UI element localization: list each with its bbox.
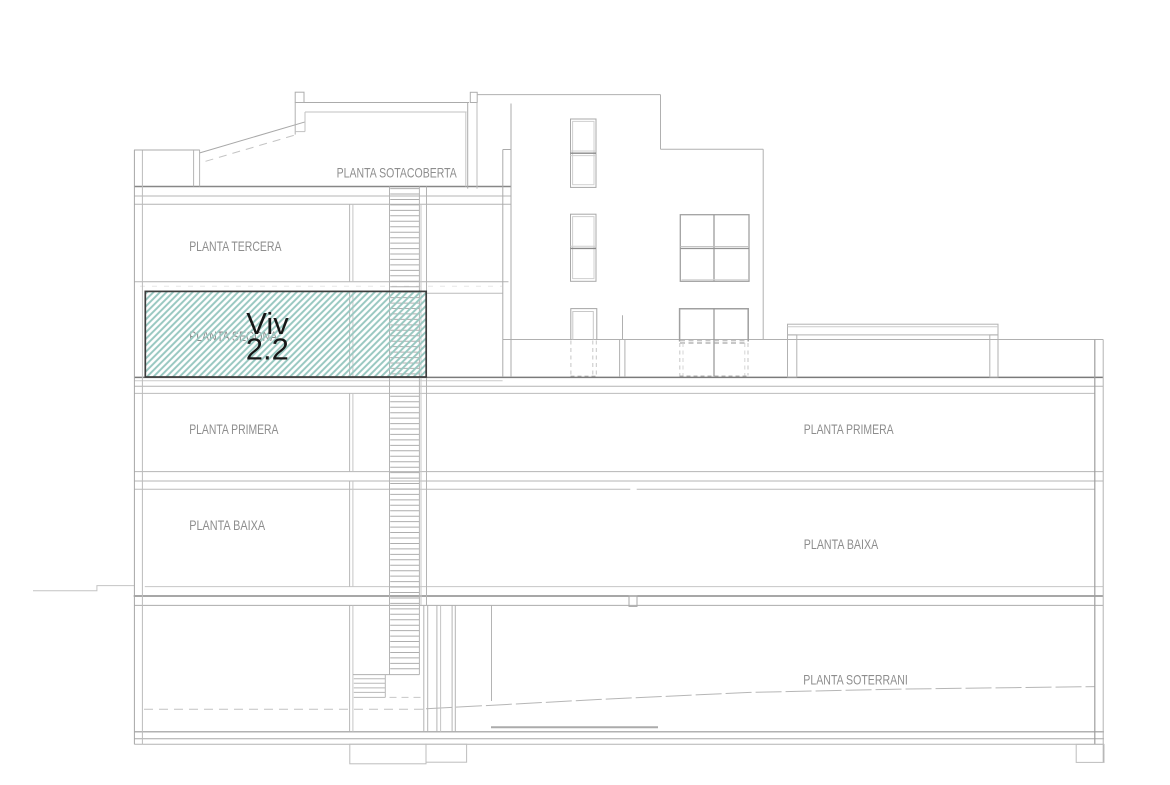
svg-text:PLANTA BAIXA: PLANTA BAIXA bbox=[804, 536, 879, 552]
svg-text:PLANTA PRIMERA: PLANTA PRIMERA bbox=[804, 421, 894, 437]
svg-text:PLANTA PRIMERA: PLANTA PRIMERA bbox=[189, 421, 279, 437]
svg-text:2.2: 2.2 bbox=[246, 332, 289, 367]
svg-text:PLANTA SOTERRANI: PLANTA SOTERRANI bbox=[803, 671, 908, 687]
svg-text:PLANTA TERCERA: PLANTA TERCERA bbox=[189, 238, 282, 254]
svg-text:PLANTA BAIXA: PLANTA BAIXA bbox=[189, 517, 265, 533]
svg-text:PLANTA SOTACOBERTA: PLANTA SOTACOBERTA bbox=[337, 165, 458, 181]
